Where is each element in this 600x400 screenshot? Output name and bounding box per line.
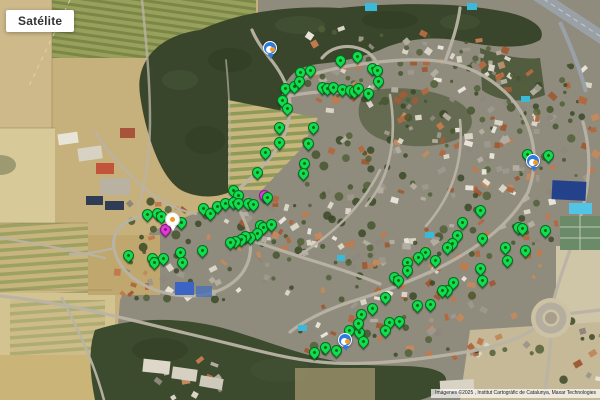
green-map-pin[interactable] [537,222,553,238]
markers-layer [0,0,600,400]
green-map-pin[interactable] [422,296,438,312]
map-canvas[interactable]: Satélite Imágenes ©2025 , Institut Carto… [0,0,600,400]
pin-tail [343,346,349,351]
blue-poi-pin[interactable] [338,333,352,347]
green-map-pin[interactable] [194,242,210,258]
green-map-pin[interactable] [349,48,365,64]
green-map-pin[interactable] [257,144,273,160]
satellite-map-type-button[interactable]: Satélite [6,10,74,32]
map-attribution: Imágenes ©2025 , Institut Cartogràfic de… [431,389,600,398]
green-map-pin[interactable] [120,247,136,263]
green-map-pin[interactable] [249,164,265,180]
white-poi-pin[interactable] [165,212,180,227]
green-map-pin[interactable] [332,52,348,68]
green-map-pin[interactable] [409,297,425,313]
green-map-pin[interactable] [499,252,515,268]
green-map-pin[interactable] [472,202,488,218]
green-map-pin[interactable] [305,119,321,135]
green-map-pin[interactable] [497,239,513,255]
green-map-pin[interactable] [295,165,311,181]
green-map-pin[interactable] [454,214,470,230]
green-map-pin[interactable] [517,242,533,258]
green-map-pin[interactable] [300,135,316,151]
green-map-pin[interactable] [391,313,407,329]
pin-tail [268,54,274,59]
green-map-pin[interactable] [540,147,556,163]
pin-tail [531,167,537,172]
blue-poi-pin[interactable] [263,41,277,55]
green-map-pin[interactable] [377,289,393,305]
pin-tail [170,226,176,231]
green-map-pin[interactable] [472,260,488,276]
green-map-pin[interactable] [271,134,287,150]
blue-poi-pin[interactable] [526,154,540,168]
green-map-pin[interactable] [474,230,490,246]
green-map-pin[interactable] [474,272,490,288]
green-map-pin[interactable] [271,119,287,135]
